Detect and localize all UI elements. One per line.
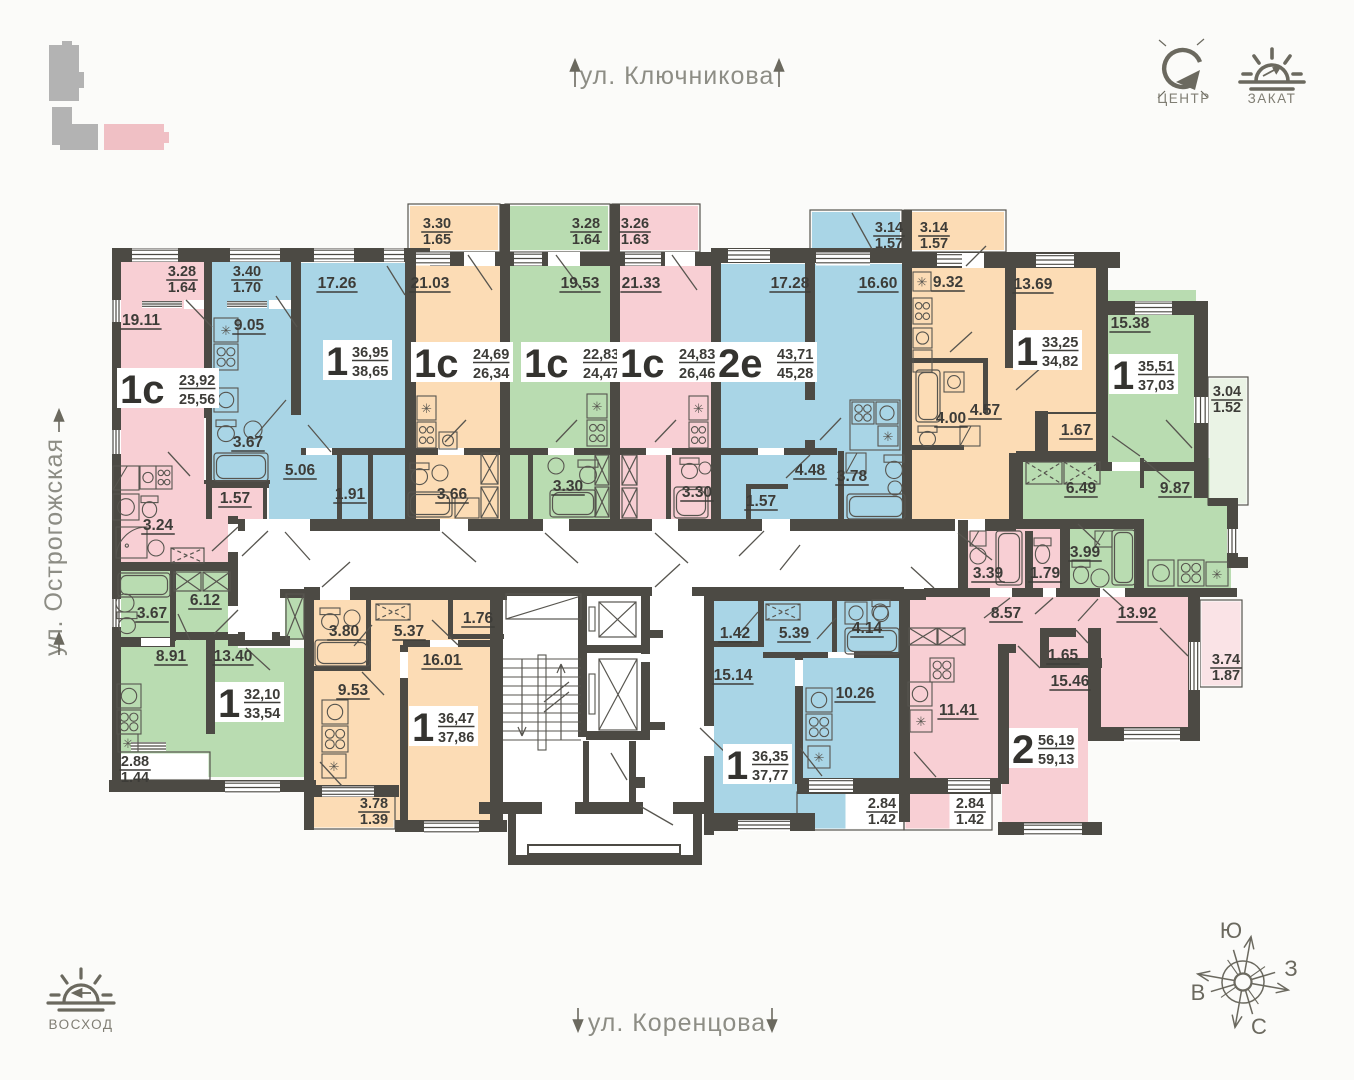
svg-text:✳: ✳ [1212,567,1223,582]
svg-text:ул. Коренцова: ул. Коренцова [588,1009,766,1037]
svg-text:24,69: 24,69 [473,347,509,363]
svg-text:43,71: 43,71 [777,347,813,363]
svg-text:1.65: 1.65 [1048,647,1079,664]
svg-text:26,46: 26,46 [679,366,715,382]
svg-text:5.06: 5.06 [285,462,316,479]
svg-text:37,03: 37,03 [1138,378,1174,394]
svg-text:3.26: 3.26 [621,216,649,232]
svg-text:4.57: 4.57 [970,402,1000,419]
svg-text:3.28: 3.28 [168,264,196,280]
svg-text:С: С [1251,1014,1267,1039]
svg-text:Ю: Ю [1220,918,1242,943]
svg-text:ЦЕНТР: ЦЕНТР [1157,91,1211,106]
svg-text:1: 1 [326,340,348,384]
svg-text:59,13: 59,13 [1038,752,1074,768]
svg-text:1.57: 1.57 [746,493,776,510]
svg-text:11.41: 11.41 [939,702,977,719]
svg-text:1.91: 1.91 [335,486,366,503]
svg-text:22,83: 22,83 [583,347,619,363]
svg-text:36,95: 36,95 [352,345,388,361]
svg-text:1.63: 1.63 [621,232,649,248]
svg-text:38,65: 38,65 [352,364,388,380]
svg-text:3.99: 3.99 [1070,544,1101,561]
svg-text:✳: ✳ [123,736,134,751]
svg-text:2е: 2е [718,342,763,386]
svg-text:1.42: 1.42 [868,812,896,828]
svg-text:З: З [1284,956,1297,981]
svg-text:24,47: 24,47 [583,366,619,382]
svg-text:21.33: 21.33 [622,275,661,292]
svg-text:15.38: 15.38 [1111,315,1150,332]
svg-text:✳: ✳ [814,750,825,765]
svg-text:1: 1 [412,706,434,750]
svg-text:1с: 1с [524,342,569,386]
svg-text:34,82: 34,82 [1042,354,1078,370]
svg-text:3.40: 3.40 [233,264,261,280]
svg-text:1: 1 [1112,354,1134,398]
svg-text:3.24: 3.24 [143,517,174,534]
svg-text:3.78: 3.78 [837,468,868,485]
svg-text:3.30: 3.30 [553,478,583,495]
svg-text:37,77: 37,77 [752,768,788,784]
svg-text:4.14: 4.14 [852,620,883,637]
svg-text:9.32: 9.32 [933,274,963,291]
svg-text:1.42: 1.42 [956,812,984,828]
svg-text:23,92: 23,92 [179,373,215,389]
svg-text:1с: 1с [414,342,459,386]
svg-text:56,19: 56,19 [1038,733,1074,749]
svg-text:19.11: 19.11 [122,312,160,329]
svg-text:13.69: 13.69 [1014,276,1053,293]
svg-text:15.46: 15.46 [1051,673,1090,690]
svg-text:3.78: 3.78 [360,796,388,812]
svg-text:1.42: 1.42 [720,625,750,642]
svg-text:3.14: 3.14 [875,220,903,236]
svg-text:19.53: 19.53 [561,275,600,292]
svg-text:5.37: 5.37 [394,623,424,640]
svg-text:32,10: 32,10 [244,687,280,703]
svg-text:1: 1 [1016,330,1038,374]
svg-text:5.39: 5.39 [779,625,810,642]
svg-text:3.80: 3.80 [329,623,359,640]
svg-text:1.57: 1.57 [920,236,948,252]
svg-text:1.76: 1.76 [463,610,494,627]
svg-text:33,54: 33,54 [244,706,280,722]
svg-text:1.67: 1.67 [1061,422,1091,439]
svg-text:✳: ✳ [693,401,704,416]
svg-text:ЗАКАТ: ЗАКАТ [1248,91,1297,106]
svg-text:2.84: 2.84 [868,796,896,812]
svg-text:✳: ✳ [592,399,603,414]
svg-text:3.39: 3.39 [973,565,1004,582]
svg-text:4.48: 4.48 [795,462,826,479]
svg-text:ВОСХОД: ВОСХОД [49,1017,114,1032]
svg-text:33,25: 33,25 [1042,335,1078,351]
svg-text:36,47: 36,47 [438,711,474,727]
svg-text:1.57: 1.57 [875,236,903,252]
svg-text:2.88: 2.88 [121,754,149,770]
svg-text:1.52: 1.52 [1213,400,1241,416]
svg-text:3.66: 3.66 [437,486,468,503]
svg-text:ул. Острогожская: ул. Острогожская [40,438,68,656]
svg-text:36,35: 36,35 [752,749,788,765]
svg-text:1.44: 1.44 [121,770,149,786]
svg-text:1с: 1с [120,368,165,412]
svg-text:17.26: 17.26 [318,275,357,292]
svg-text:2: 2 [1012,728,1034,772]
svg-text:8.57: 8.57 [991,605,1021,622]
svg-text:1с: 1с [620,342,665,386]
svg-text:10.26: 10.26 [836,685,875,702]
svg-text:13.40: 13.40 [214,648,253,665]
svg-text:13.92: 13.92 [1118,605,1157,622]
svg-text:3.67: 3.67 [137,605,167,622]
svg-text:✳: ✳ [916,714,927,729]
svg-text:1.64: 1.64 [168,280,196,296]
svg-text:6.12: 6.12 [190,592,220,609]
svg-text:В: В [1191,980,1206,1005]
svg-text:✳: ✳ [917,275,928,290]
svg-text:24,83: 24,83 [679,347,715,363]
svg-text:9.53: 9.53 [338,682,369,699]
svg-text:3.67: 3.67 [233,434,263,451]
svg-text:1.87: 1.87 [1212,668,1240,684]
svg-text:3.30: 3.30 [682,484,712,501]
svg-text:1: 1 [726,744,748,788]
svg-text:9.05: 9.05 [234,317,265,334]
svg-text:✳: ✳ [329,759,340,774]
svg-text:3.04: 3.04 [1213,384,1241,400]
svg-text:45,28: 45,28 [777,366,813,382]
svg-text:16.01: 16.01 [423,652,462,669]
svg-text:1.39: 1.39 [360,812,388,828]
svg-text:37,86: 37,86 [438,730,474,746]
svg-text:17.28: 17.28 [771,275,810,292]
svg-text:3.74: 3.74 [1212,652,1240,668]
svg-text:1.64: 1.64 [572,232,600,248]
svg-text:8.91: 8.91 [156,648,187,665]
svg-text:3.14: 3.14 [920,220,948,236]
svg-text:✳: ✳ [221,323,232,338]
svg-text:1.70: 1.70 [233,280,261,296]
svg-text:1.79: 1.79 [1030,565,1061,582]
svg-text:3.30: 3.30 [423,216,451,232]
svg-text:1: 1 [218,682,240,726]
svg-text:1.57: 1.57 [220,490,250,507]
svg-text:15.14: 15.14 [714,667,753,684]
svg-text:35,51: 35,51 [1138,359,1174,375]
svg-text:26,34: 26,34 [473,366,509,382]
svg-text:16.60: 16.60 [859,275,898,292]
svg-text:25,56: 25,56 [179,392,215,408]
svg-text:6.49: 6.49 [1066,480,1097,497]
svg-text:2.84: 2.84 [956,796,984,812]
svg-text:21.03: 21.03 [411,275,450,292]
svg-text:✳: ✳ [421,401,432,416]
svg-text:4.00: 4.00 [936,410,966,427]
svg-text:ул. Ключникова: ул. Ключникова [580,62,775,90]
svg-text:9.87: 9.87 [1160,480,1190,497]
svg-text:✳: ✳ [883,429,894,444]
svg-text:3.28: 3.28 [572,216,600,232]
svg-text:1.65: 1.65 [423,232,451,248]
